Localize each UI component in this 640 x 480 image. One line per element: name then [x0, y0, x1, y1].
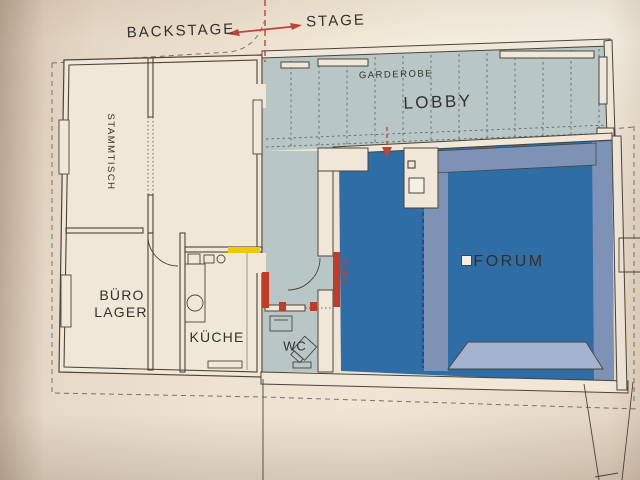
label-lobby: LOBBY [403, 92, 473, 111]
label-wc: WC [283, 340, 307, 353]
label-expo: EXPO [339, 259, 347, 285]
label-lager: LAGER [94, 305, 147, 319]
floor-plan-photo: BACKSTAGE STAGE GARDEROBE LOBBY STAMMTIS… [0, 0, 640, 480]
pillar-box [409, 178, 424, 193]
label-stage: STAGE [306, 12, 366, 29]
label-backstage: BACKSTAGE [126, 22, 235, 41]
forum-bullet-square [461, 255, 472, 266]
red-wall-mark-left [262, 272, 269, 308]
label-kueche: KÜCHE [189, 330, 244, 344]
label-forum: FORUM [473, 254, 544, 270]
yellow-wall-mark [228, 247, 260, 253]
label-buero: BÜRO [99, 288, 144, 302]
label-stammtisch: STAMMTISCH [105, 113, 115, 190]
label-garderobe: GARDEROBE [359, 69, 433, 80]
forum-gallery-right [592, 141, 614, 383]
floorplan-drawing [0, 0, 640, 480]
forum-stage-platform [448, 342, 603, 369]
